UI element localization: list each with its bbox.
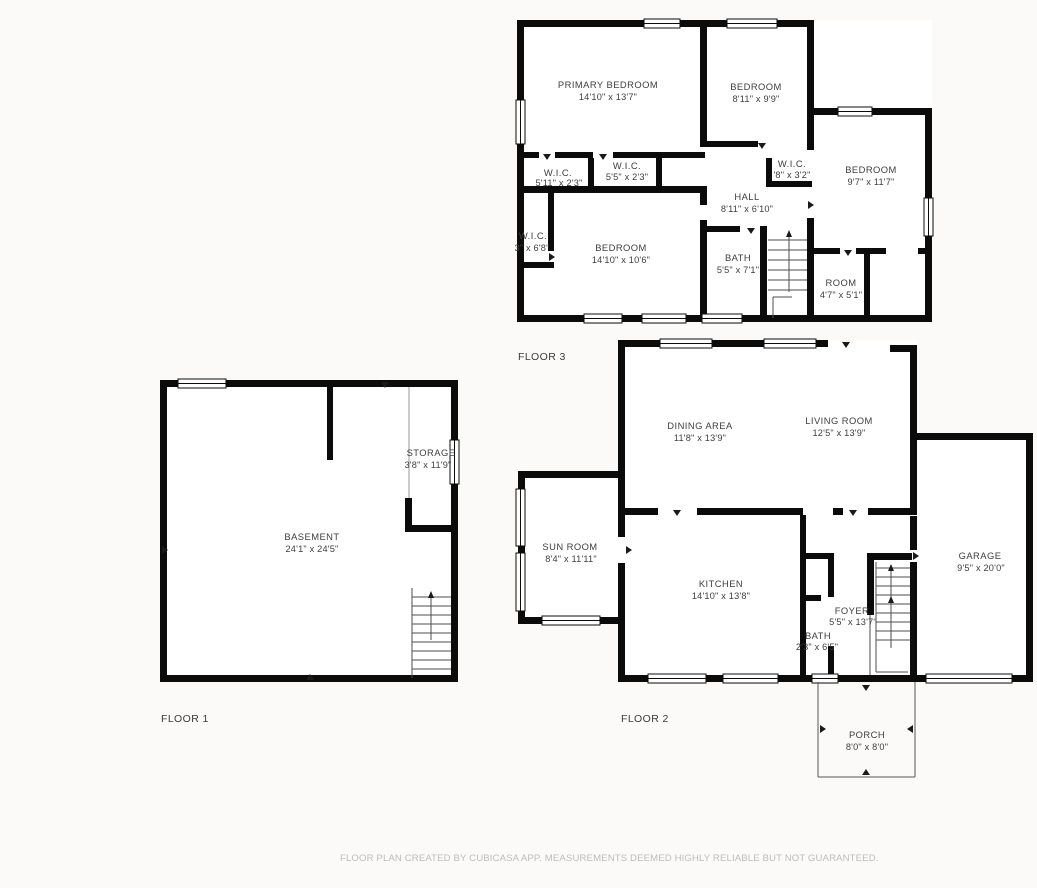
room-name: BATH bbox=[725, 252, 751, 263]
floorplan-canvas: PRIMARY BEDROOM 14'10" x 13'7" BEDROOM 8… bbox=[0, 0, 1037, 888]
room-dims: 14'10" x 10'6" bbox=[592, 255, 650, 265]
room-dims: 5'11" x 2'3" bbox=[536, 178, 583, 188]
room-dims: 4'7" x 5'1" bbox=[820, 290, 862, 300]
room-dims: 14'10" x 13'7" bbox=[579, 92, 637, 102]
room-dims: 2'3" x 6'5" bbox=[796, 642, 838, 652]
room-dims: 8'11" x 6'10" bbox=[721, 204, 773, 214]
room-name: BATH bbox=[805, 630, 831, 641]
room-name: PRIMARY BEDROOM bbox=[558, 79, 658, 90]
room-name: ROOM bbox=[826, 277, 857, 288]
room-dims: 8'0" x 8'0" bbox=[846, 742, 888, 752]
floor-2-label: FLOOR 2 bbox=[621, 713, 669, 725]
room-dims: 24'1" x 24'5" bbox=[286, 544, 339, 554]
room-dims: 8'11" x 9'9" bbox=[733, 94, 780, 104]
room-dims: 9'7" x 11'7" bbox=[848, 177, 895, 187]
room-dims: 14'10" x 13'8" bbox=[692, 591, 750, 601]
room-name: BASEMENT bbox=[284, 531, 339, 542]
room-dims: '8" x 3'2" bbox=[773, 170, 810, 180]
floor-1-label: FLOOR 1 bbox=[161, 713, 209, 725]
room-name: HALL bbox=[734, 191, 759, 202]
floor-3-label: FLOOR 3 bbox=[518, 351, 566, 363]
room-dims: 3'8" x 11'9" bbox=[405, 460, 452, 470]
room-dims: 5'5" x 7'1" bbox=[717, 265, 759, 275]
room-name: STORAGE bbox=[407, 447, 456, 458]
floor-1-plan: BASEMENT 24'1" x 24'5" STORAGE 3'8" x 11… bbox=[160, 379, 459, 725]
room-name: BEDROOM bbox=[595, 242, 647, 253]
room-name: W.I.C. bbox=[778, 158, 806, 169]
room-name: W.I.C. bbox=[613, 160, 641, 171]
floor-plan-page: { "page": { "disclaimer": "FLOOR PLAN CR… bbox=[0, 0, 1037, 888]
room-name: PORCH bbox=[849, 729, 885, 740]
room-dims: 3" x 6'8" bbox=[514, 243, 549, 253]
room-name: LIVING ROOM bbox=[805, 415, 872, 426]
floor-3-plan: PRIMARY BEDROOM 14'10" x 13'7" BEDROOM 8… bbox=[514, 19, 933, 363]
room-dims: 5'5" x 2'3" bbox=[606, 172, 648, 182]
room-name: DINING AREA bbox=[667, 420, 733, 431]
room-name: KITCHEN bbox=[699, 578, 743, 589]
room-dims: 9'5" x 20'0" bbox=[957, 563, 1005, 573]
disclaimer-text: FLOOR PLAN CREATED BY CUBICASA APP. MEAS… bbox=[340, 853, 860, 864]
room-name: W.I.C. bbox=[519, 230, 547, 241]
room-dims: 12'5" x 13'9" bbox=[813, 428, 866, 438]
room-name: W.I.C. bbox=[544, 167, 572, 178]
front-door bbox=[812, 674, 838, 683]
room-name: BEDROOM bbox=[730, 81, 782, 92]
room-name: GARAGE bbox=[959, 550, 1002, 561]
garage-door bbox=[926, 674, 1012, 683]
room-dims: 5'5" x 13'7" bbox=[829, 617, 877, 627]
room-dims: 11'8" x 13'9" bbox=[674, 433, 726, 443]
room-dims: 8'4" x 11'11" bbox=[545, 554, 597, 564]
room-name: SUN ROOM bbox=[542, 541, 597, 552]
floor-2-plan: DINING AREA 11'8" x 13'9" LIVING ROOM 12… bbox=[516, 339, 1033, 777]
room-name: FOYER bbox=[835, 605, 870, 616]
room-name: BEDROOM bbox=[845, 164, 897, 175]
